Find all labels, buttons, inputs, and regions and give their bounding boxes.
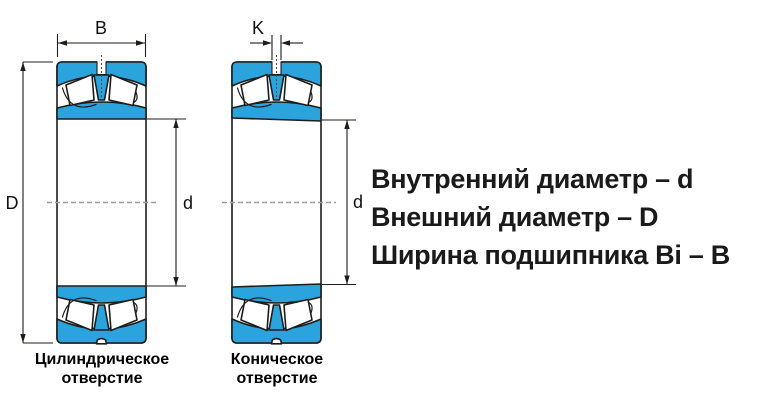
bottom-half: [57, 298, 146, 343]
arrowhead-up: [20, 62, 25, 71]
right-bearing-cross-section: [222, 55, 336, 344]
legend-inner-diameter: Внутренний диаметр – d: [371, 160, 730, 198]
caption-line-2: отверстие: [197, 369, 357, 388]
dim-label-d: d: [353, 192, 363, 212]
dimension-legend: Внутренний диаметр – d Внешний диаметр –…: [371, 160, 730, 274]
arrowhead-right: [281, 40, 290, 46]
arrowhead-down: [173, 277, 178, 286]
arrowhead-down: [344, 276, 349, 285]
dimension-B: B: [58, 18, 146, 57]
bottom-half: [232, 298, 321, 343]
left-bearing-caption: Цилиндрическое отверстие: [22, 350, 182, 388]
right-bearing-caption: Коническое отверстие: [197, 350, 357, 388]
dim-label-d: d: [183, 193, 193, 213]
legend-outer-diameter: Внешний диаметр – D: [371, 198, 730, 236]
dim-label-B: B: [95, 18, 107, 38]
arrowhead-up: [173, 119, 178, 128]
bearing-diagram-page: B K D d: [0, 0, 762, 408]
arrowhead-right: [136, 40, 145, 46]
bottom-half-mirrored: [57, 286, 146, 343]
caption-line-2: отверстие: [22, 369, 182, 388]
bottom-notch: [272, 339, 282, 344]
arrowhead-left: [263, 40, 272, 46]
bottom-notch: [97, 339, 107, 344]
dimension-D: D: [6, 62, 54, 343]
arrowhead-left: [58, 40, 67, 46]
dimension-K: K: [250, 18, 303, 60]
left-bearing-cross-section: [47, 55, 159, 344]
arrowhead-down: [20, 334, 25, 343]
dim-label-D: D: [6, 193, 19, 213]
dim-label-K: K: [252, 18, 264, 38]
legend-bearing-width: Ширина подшипника Bi – B: [371, 236, 730, 274]
caption-line-1: Коническое: [197, 350, 357, 369]
arrowhead-up: [344, 120, 349, 129]
bottom-half-mirrored: [232, 284, 321, 343]
caption-line-1: Цилиндрическое: [22, 350, 182, 369]
